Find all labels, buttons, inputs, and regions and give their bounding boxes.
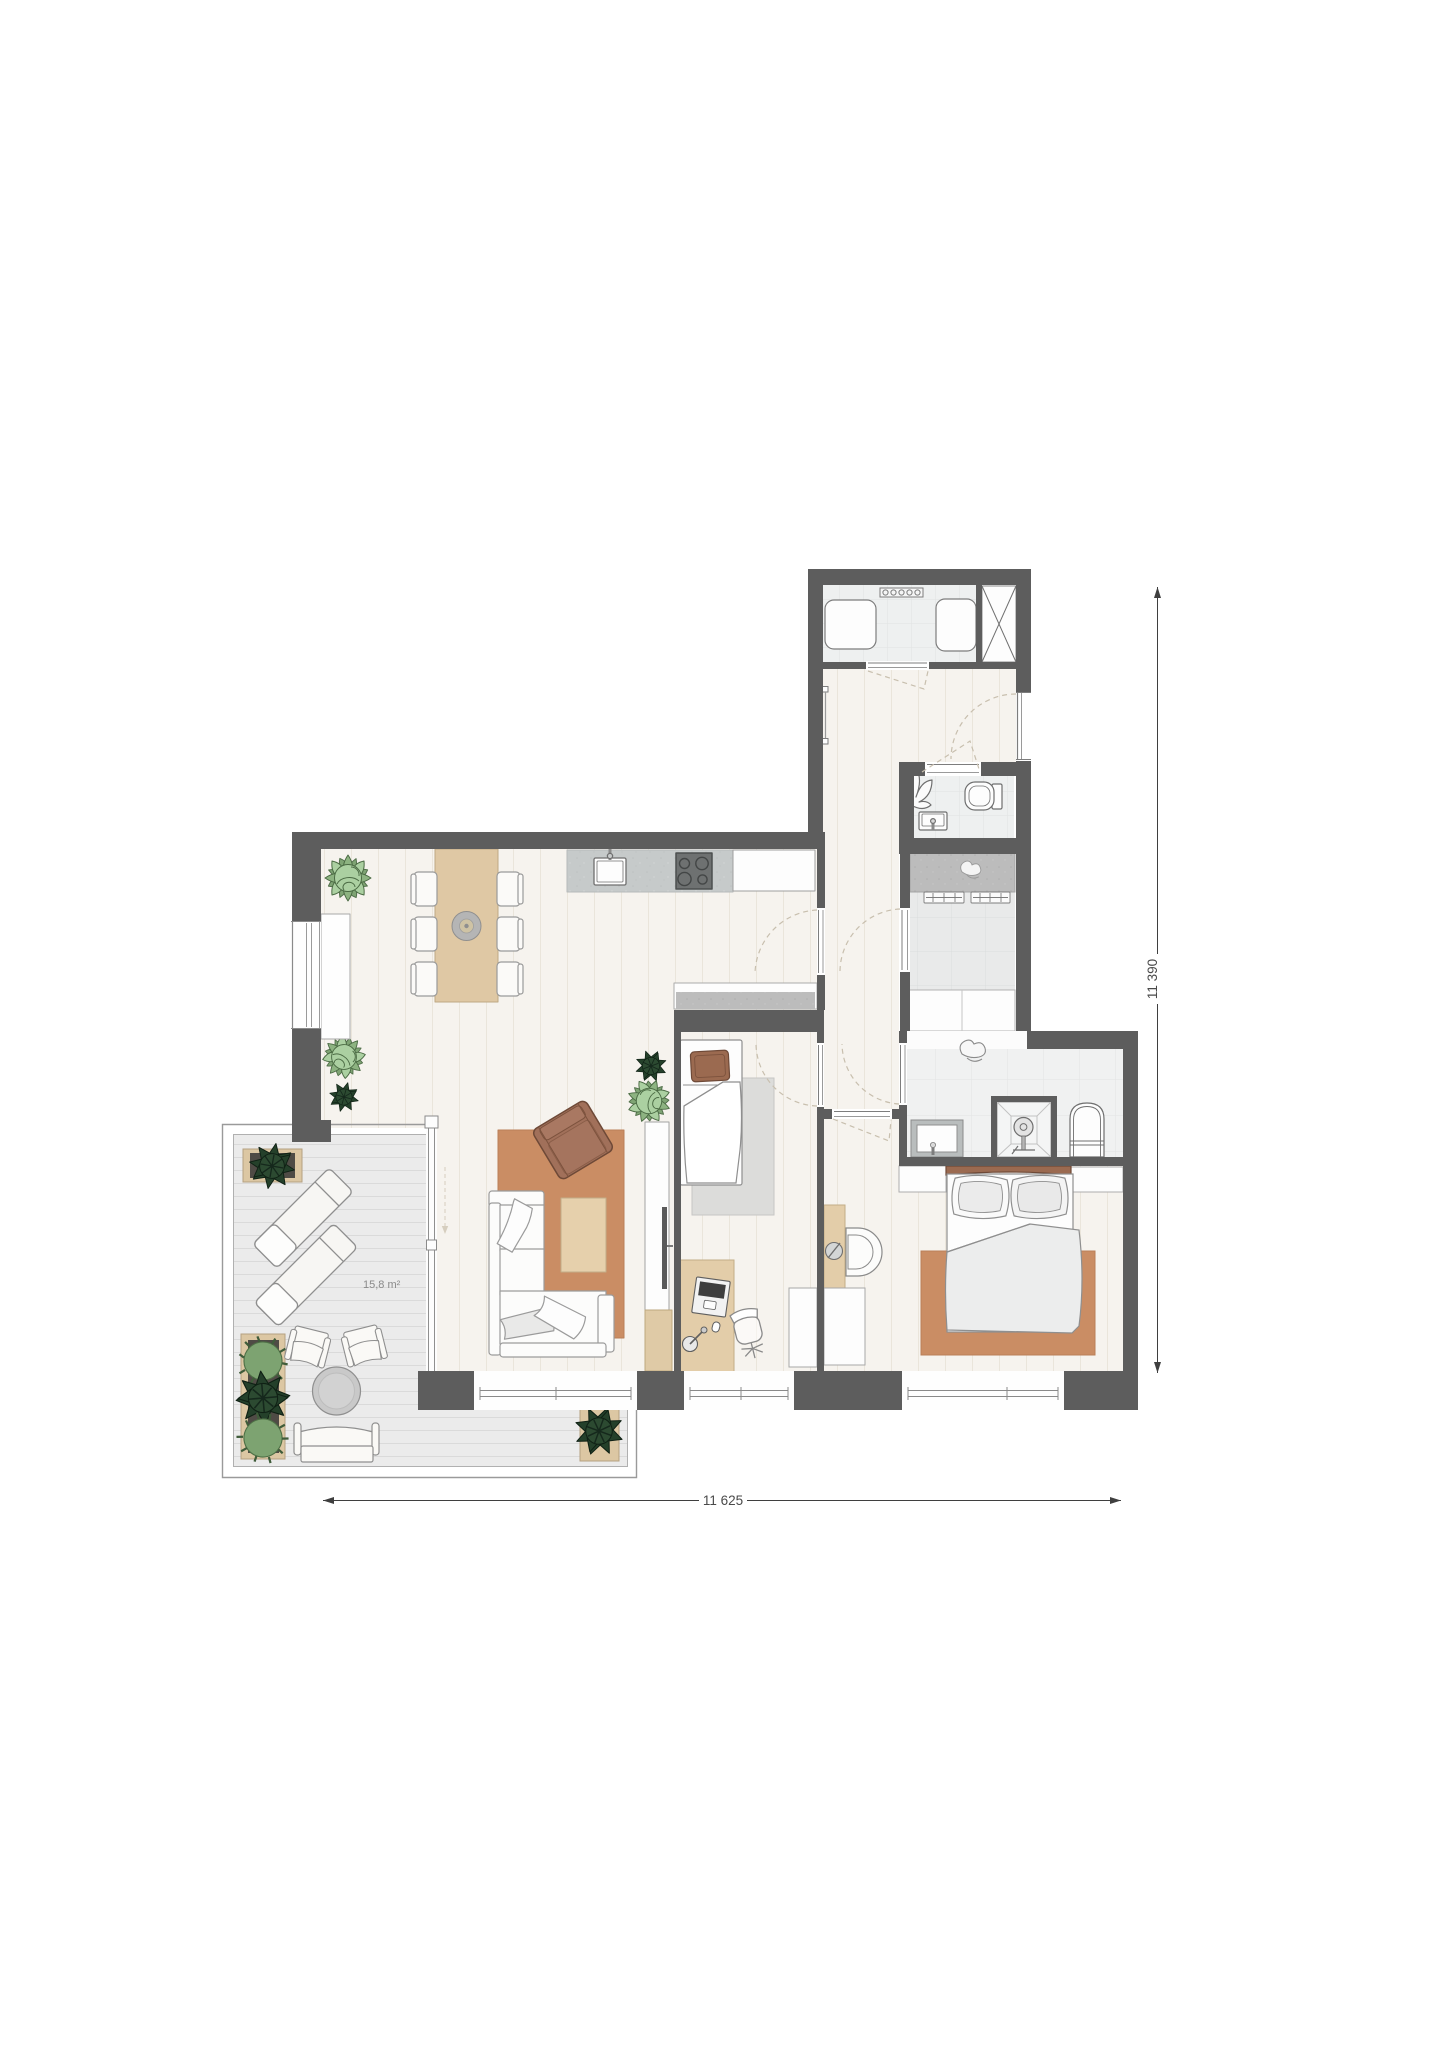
svg-text:11 625: 11 625 [703,1493,743,1508]
svg-text:11 390: 11 390 [1145,959,1160,999]
svg-text:15,8 m²: 15,8 m² [363,1279,401,1291]
